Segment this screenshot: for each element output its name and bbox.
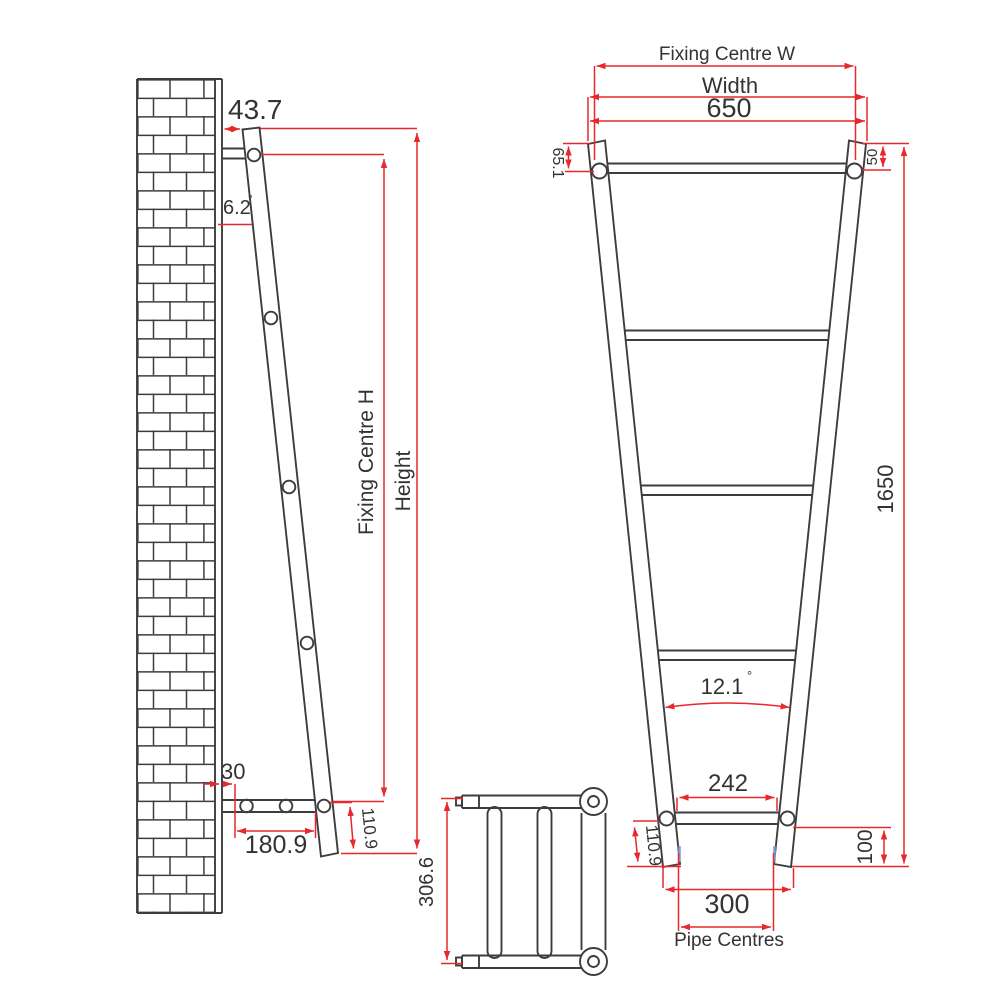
dimension-lines — [203, 66, 909, 964]
label-right-fixing-offset: 50 — [864, 149, 881, 166]
label-left-fixing-offset: 65.1 — [549, 147, 566, 178]
pipe-connection-marks — [680, 846, 775, 862]
side-top-bracket — [222, 149, 246, 159]
label-side-foot-length: 110.9 — [358, 807, 381, 850]
label-wall-offset: 43.7 — [228, 94, 283, 125]
label-pipe-centres: Pipe Centres — [674, 930, 784, 951]
drawing-canvas: 43.7 6.2 ° Fixing Centre H Height 30 180… — [0, 0, 1005, 1005]
label-lean-angle-degree: ° — [248, 192, 253, 206]
label-lean-angle: 6.2 — [223, 197, 251, 219]
label-pipe-centres-value: 300 — [704, 889, 749, 919]
label-taper-angle-degree: ° — [747, 668, 752, 683]
front-left-rail — [588, 141, 680, 868]
label-width-value: 650 — [706, 93, 751, 123]
brick-wall — [137, 79, 222, 913]
label-height-value: 1650 — [873, 465, 898, 514]
radiator-dimension-drawing: 43.7 6.2 ° Fixing Centre H Height 30 180… — [0, 0, 1005, 1005]
label-taper-angle: 12.1 — [701, 674, 744, 699]
label-fixing-centre-h: Fixing Centre H — [355, 389, 378, 535]
label-bracket-wall-gap: 30 — [221, 759, 245, 784]
label-plan-depth: 306.6 — [416, 857, 438, 907]
front-view-frame — [588, 141, 866, 868]
label-right-foot-offset: 100 — [854, 829, 877, 864]
label-height: Height — [392, 450, 415, 511]
label-front-foot-length: 110.9 — [642, 824, 665, 867]
label-bracket-length: 180.9 — [245, 831, 308, 859]
front-right-rail — [774, 141, 866, 868]
plan-view — [456, 788, 607, 975]
side-bottom-bracket — [222, 800, 318, 812]
label-fixing-centre-w: Fixing Centre W — [659, 44, 795, 65]
label-bottom-inner-width: 242 — [708, 770, 748, 797]
side-rail — [240, 128, 338, 857]
